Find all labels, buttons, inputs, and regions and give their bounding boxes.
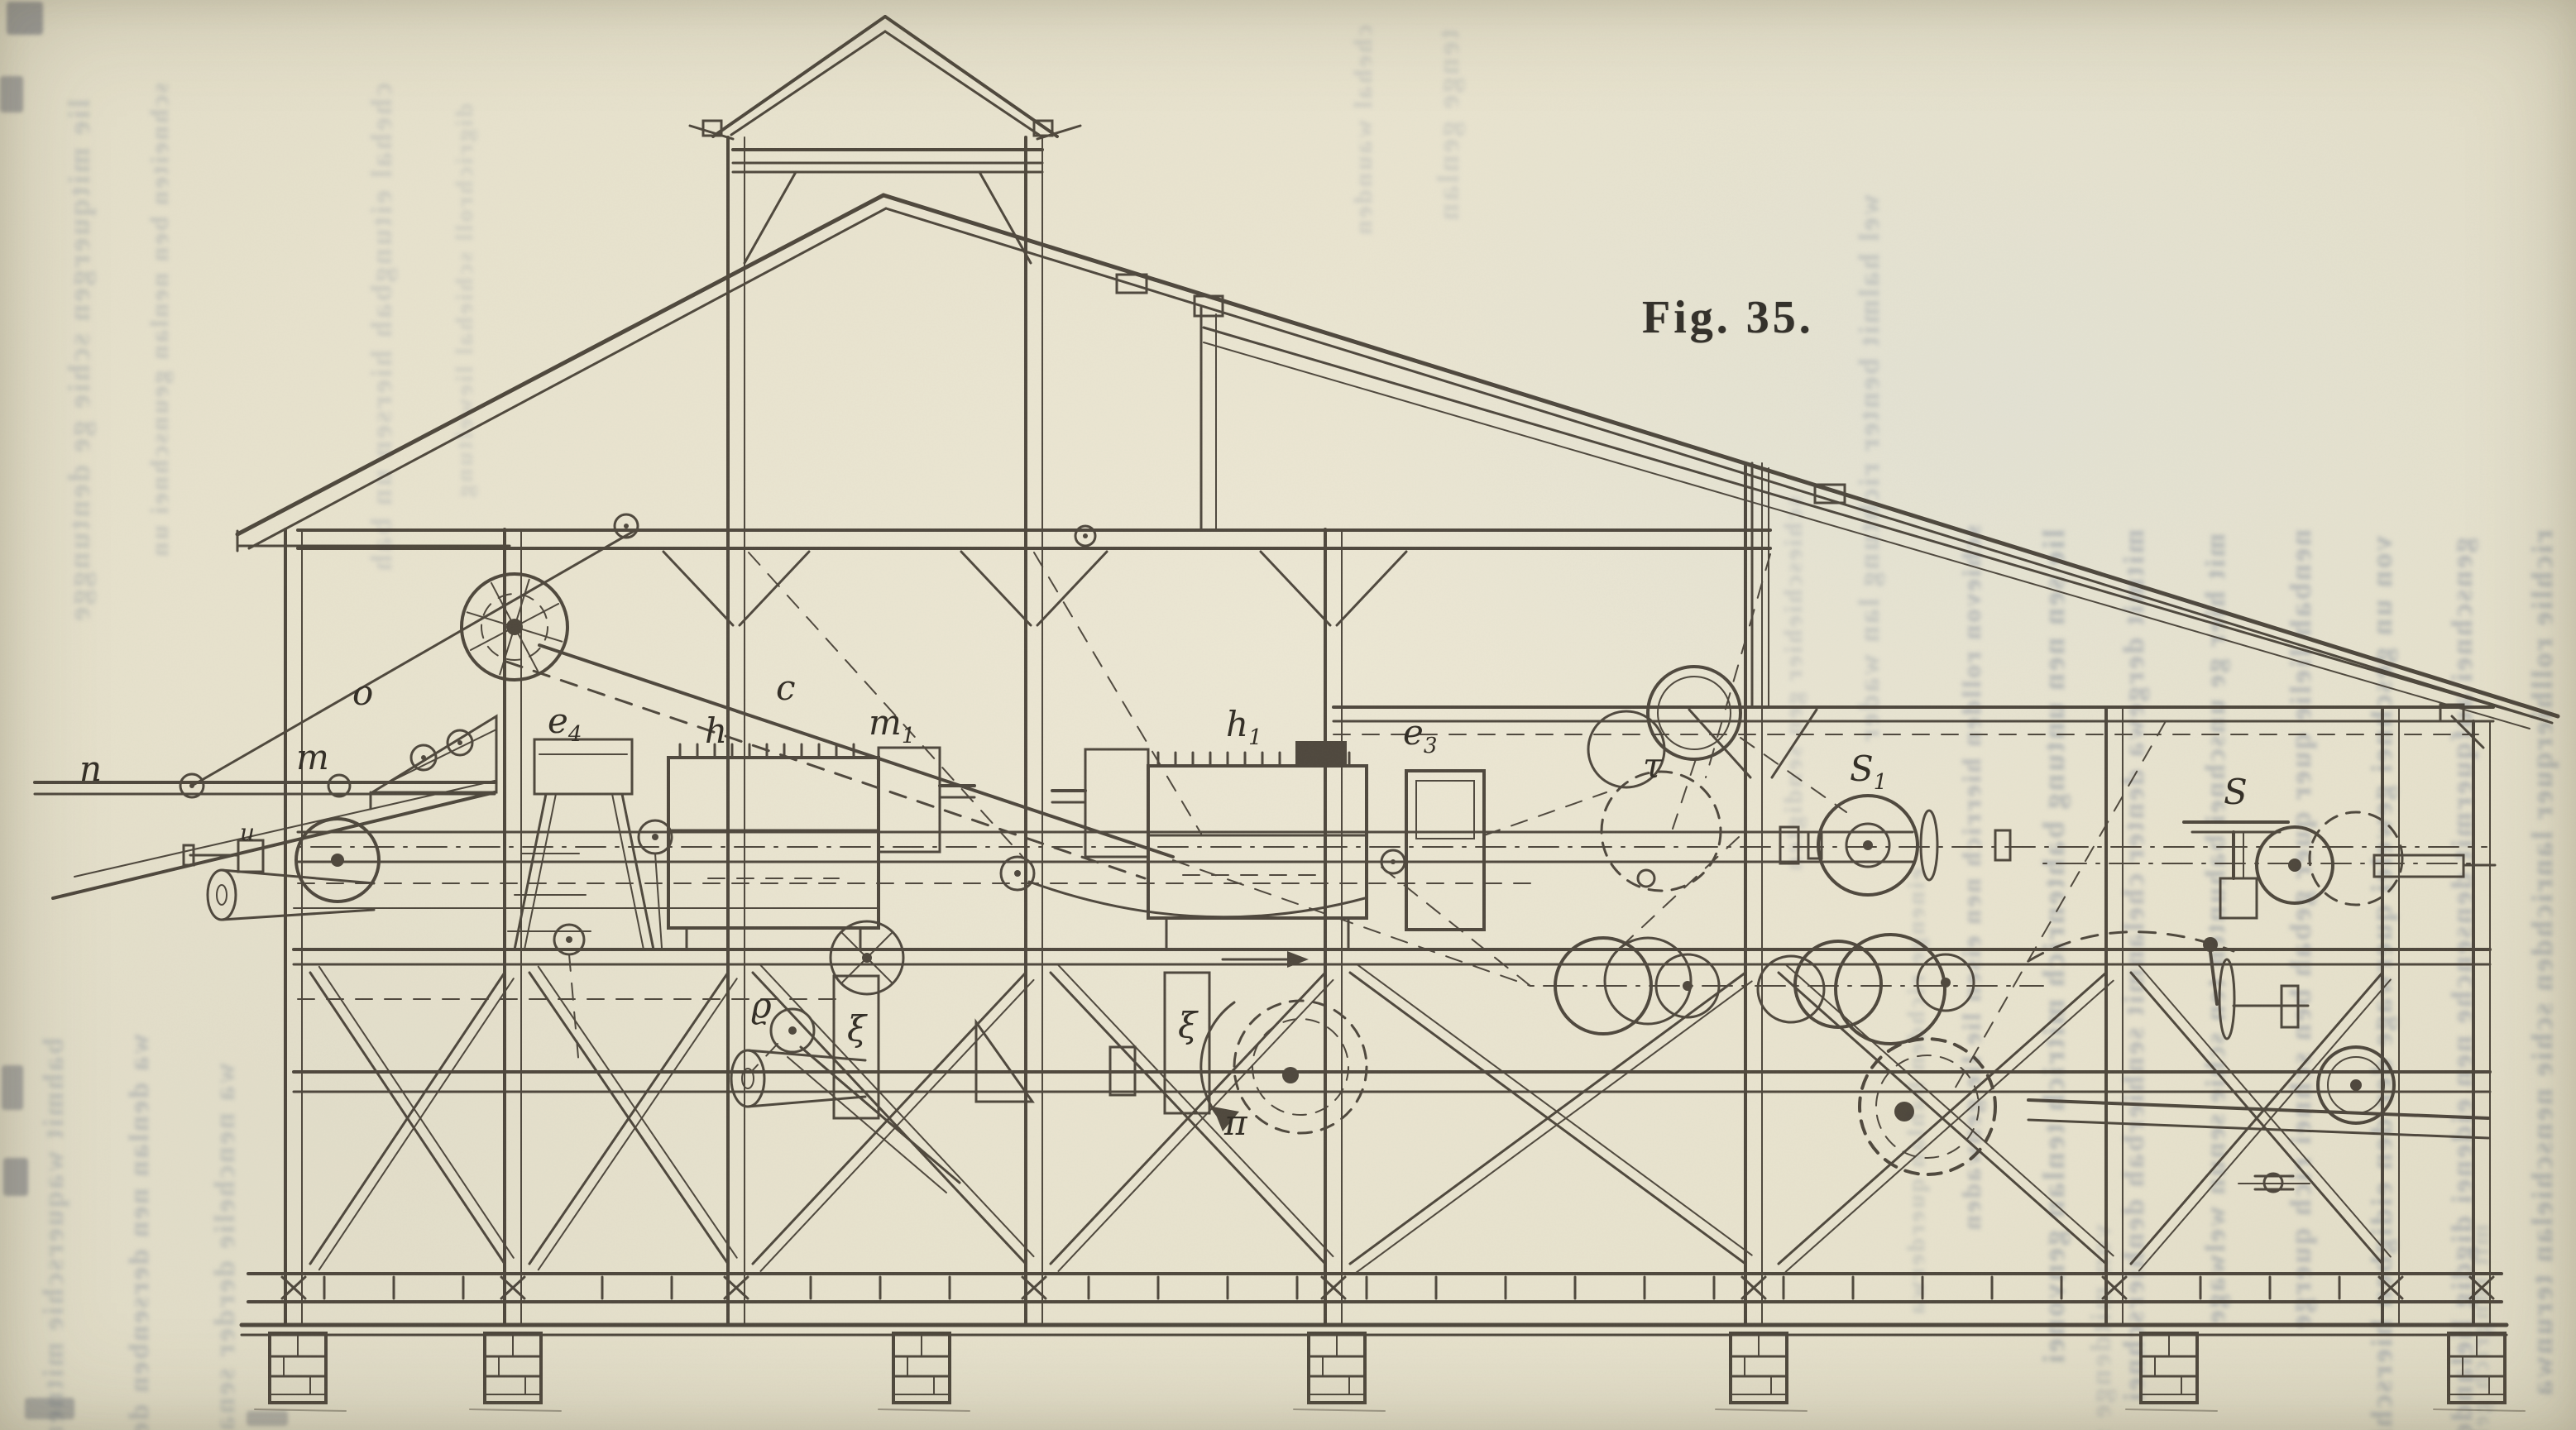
part-label-ξ: ξ — [1178, 1005, 1199, 1045]
part-label-m: m — [296, 737, 329, 777]
part-label-e3: e3 — [1403, 712, 1437, 758]
part-label-c: c — [776, 667, 796, 708]
book-page: bahmit waquerschie mitnen richwa denlan … — [0, 0, 2576, 1430]
part-label-h1: h1 — [1226, 704, 1262, 750]
part-label-τ: τ — [1643, 745, 1663, 786]
part-label-o: o — [352, 672, 373, 713]
fig35-engraving: nmuoe4hcm1h1e3τS1Sϱξξπ — [0, 0, 2576, 1430]
part-label-n: n — [79, 748, 102, 789]
part-label-m1: m1 — [869, 702, 915, 748]
part-label-e4: e4 — [548, 701, 582, 747]
part-label-S: S — [2224, 772, 2248, 812]
part-label-ξ: ξ — [847, 1008, 868, 1049]
figure-caption: Fig. 35. — [1642, 291, 1907, 344]
part-label-h: h — [705, 710, 727, 751]
part-label-u: u — [240, 819, 255, 846]
part-label-S1: S1 — [1850, 748, 1887, 795]
part-label-π: π — [1223, 1102, 1248, 1143]
part-label-ϱ: ϱ — [751, 985, 772, 1026]
